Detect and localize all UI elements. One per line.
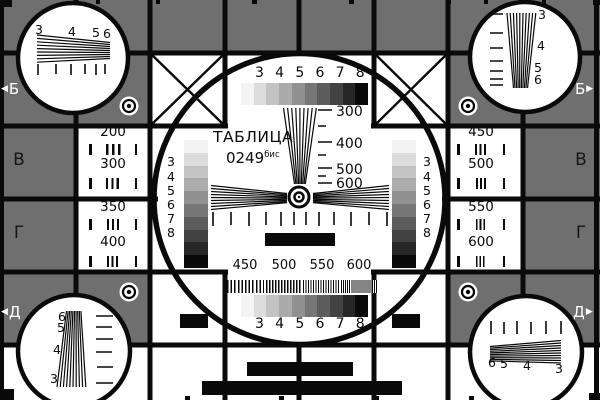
target-icon [120,283,139,302]
row-label-b-right: Б▶ [575,80,593,98]
row-label-b-left: ◀Б [1,80,19,98]
ramp-digit: 8 [420,227,434,240]
corner-digit: 6 [532,74,544,87]
burst-label-500: 500 [264,259,304,272]
burst-label-600: 600 [339,259,379,272]
corner-digit: 3 [33,24,45,37]
card-title: ТАБЛИЦА [213,130,293,146]
wedge-label-300: 300 [336,105,363,119]
wedge-label-400: 400 [336,137,363,151]
ramp-digit: 3 [164,156,178,169]
ramp-digit: 4 [164,171,178,184]
row-label-v-right: В [568,152,594,169]
ramp-digit: 5 [164,185,178,198]
target-icon [459,97,478,116]
pattern-layer [0,0,600,400]
res-cell-value-300: 300 [85,158,141,172]
corner-digit: 3 [553,363,565,376]
calibration-ticks-center-left [213,212,294,226]
card-number: 0249бис [226,151,280,166]
card-number-suffix: бис [264,150,279,160]
grayscale-digits-bottom: 3 4 5 6 7 8 [255,317,368,331]
ramp-digit: 4 [420,171,434,184]
calibration-ticks-center-right [306,212,387,226]
res-cell-value-400: 400 [85,236,141,250]
wedge-fan-center-left [211,186,287,210]
center-bullseye [289,187,309,207]
res-cell-value-600: 600 [453,236,509,250]
ramp-digit: 6 [420,199,434,212]
row-label-v-left: В [6,152,32,169]
right-arrow-icon: ▶ [586,84,593,94]
corner-digit: 3 [48,373,60,386]
wedge-fan-center-vertical [284,108,317,184]
ramp-digit: 8 [164,227,178,240]
target-icon [120,97,139,116]
row-label-d-right: Д▶ [573,303,593,321]
target-icon [459,283,478,302]
left-arrow-icon: ◀ [1,307,8,317]
ramp-digit: 6 [164,199,178,212]
res-cell-value-450: 450 [453,126,509,140]
ramp-digit: 7 [420,213,434,226]
res-cell-value-350: 350 [85,201,141,215]
ramp-digit: 5 [420,185,434,198]
corner-digit: 5 [498,358,510,371]
res-cell-value-200: 200 [85,126,141,140]
res-cell-value-500: 500 [453,158,509,172]
corner-digit: 4 [51,344,63,357]
wedge-label-500: 500 [336,163,363,177]
corner-digit: 4 [66,26,78,39]
grayscale-digits-top: 3 4 5 6 7 8 [255,66,368,80]
corner-digit: 5 [55,322,67,335]
corner-digit: 3 [536,9,548,22]
tv-test-card: ТАБЛИЦА 0249бис 3 4 5 6 7 8 3 4 5 6 7 8 … [0,0,600,400]
ramp-digit: 7 [164,213,178,226]
corner-circle-top-right [470,2,580,112]
corner-digit: 6 [486,357,498,370]
wedge-scale-ticks-center [318,110,332,183]
row-label-d-left: ◀Д [1,303,21,321]
wedge-label-600: 600 [336,177,363,191]
burst-label-450: 450 [225,259,265,272]
corner-digit: 4 [521,360,533,373]
corner-digit: 6 [101,28,113,41]
row-label-g-right: Г [568,225,594,242]
right-arrow-icon: ▶ [586,307,593,317]
ramp-digit: 3 [420,156,434,169]
row-label-g-left: Г [6,225,32,242]
burst-label-550: 550 [302,259,342,272]
corner-digit: 4 [535,40,547,53]
res-cell-value-550: 550 [453,201,509,215]
left-arrow-icon: ◀ [1,84,8,94]
